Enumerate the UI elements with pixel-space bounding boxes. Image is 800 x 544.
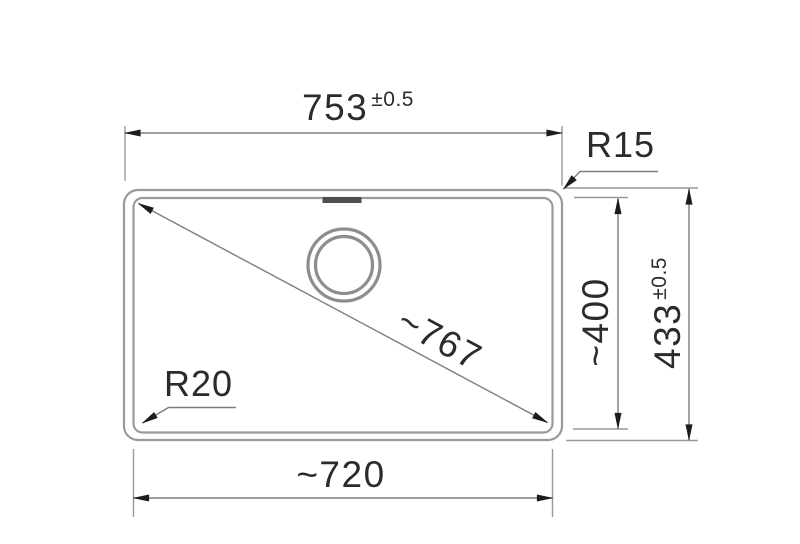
overall-width-value: 753 bbox=[302, 87, 368, 128]
radius-r20-label: R20 bbox=[164, 363, 233, 404]
overall-depth-value: 433 bbox=[647, 303, 688, 369]
sink-dimension-drawing: 753±0.5 R15 R20 ~720 ~400 433±0.5 ~767 bbox=[0, 0, 800, 544]
overall-width-label: 753±0.5 bbox=[302, 87, 414, 128]
diagonal-label: ~767 bbox=[391, 300, 489, 378]
radius-r15-label: R15 bbox=[586, 124, 655, 165]
drain-hole-outer-circle bbox=[308, 229, 380, 301]
overall-depth-tolerance: ±0.5 bbox=[648, 257, 671, 300]
overall-width-tolerance: ±0.5 bbox=[371, 88, 414, 111]
basin-width-label: ~720 bbox=[296, 454, 385, 495]
leader-line-r15 bbox=[564, 172, 659, 190]
leader-line-r20 bbox=[143, 408, 237, 424]
drawing-canvas: 753±0.5 R15 R20 ~720 ~400 433±0.5 ~767 bbox=[0, 0, 800, 544]
overflow-mark bbox=[323, 197, 362, 203]
basin-depth-label: ~400 bbox=[575, 277, 616, 366]
overall-depth-label: 433±0.5 bbox=[647, 257, 688, 369]
drain-hole-inner-circle bbox=[316, 237, 373, 294]
